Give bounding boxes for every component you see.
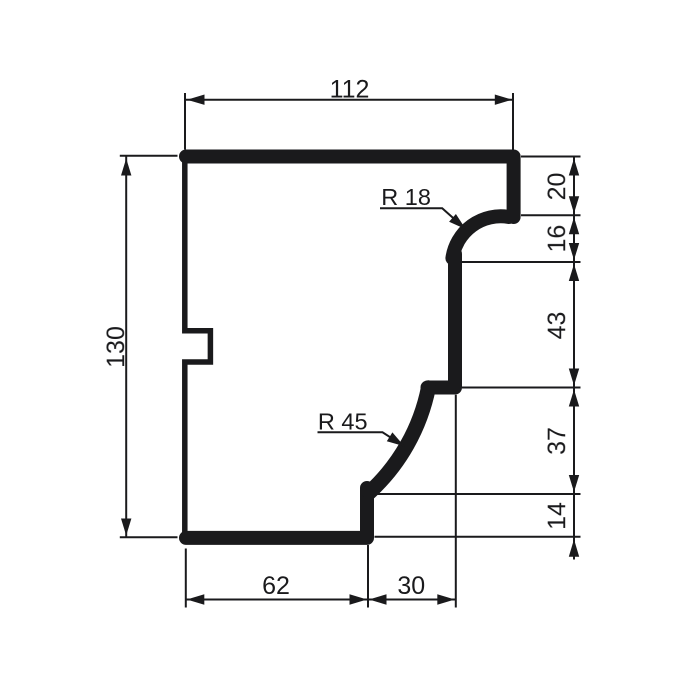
svg-text:62: 62 — [262, 572, 290, 600]
svg-text:43: 43 — [543, 312, 571, 340]
svg-text:37: 37 — [543, 427, 571, 455]
svg-text:16: 16 — [543, 225, 571, 253]
svg-text:R 18: R 18 — [381, 184, 431, 210]
svg-text:30: 30 — [397, 572, 425, 600]
svg-text:112: 112 — [330, 76, 370, 104]
svg-text:14: 14 — [543, 502, 571, 530]
svg-text:R 45: R 45 — [318, 408, 368, 434]
svg-text:130: 130 — [102, 326, 130, 368]
svg-text:20: 20 — [543, 173, 571, 201]
